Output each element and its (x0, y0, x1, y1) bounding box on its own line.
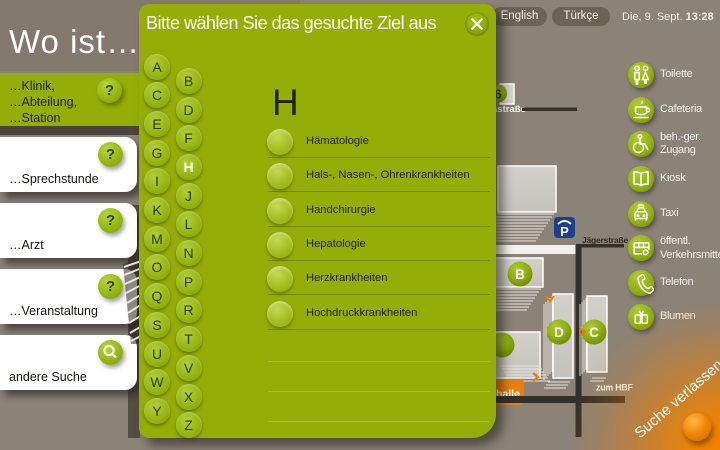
svg-text:P: P (560, 224, 569, 239)
svg-text:astraße: astraße (492, 104, 526, 115)
svg-text:Jägerstraße: Jägerstraße (582, 235, 628, 245)
svg-text:B: B (515, 267, 525, 282)
